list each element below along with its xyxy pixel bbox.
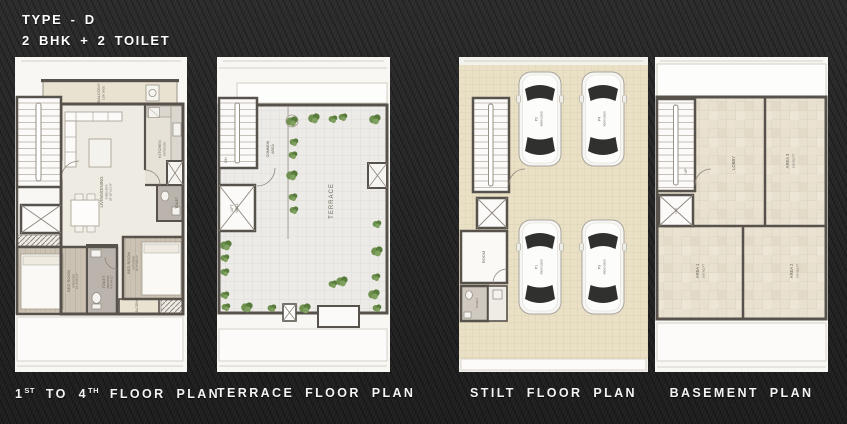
label-area2: AREA 2 (789, 263, 794, 278)
label-car-p2-size: 4500X2500 (540, 111, 544, 127)
floor-plan-1to4-drawing: BALCONY 1200 WIDE LIVING/DINING 6300X355… (15, 57, 187, 372)
caption-sup: TH (88, 386, 99, 395)
label-bedroom-b-dim-ft: 10'-5"X10'-0" (135, 255, 139, 271)
label-area3: AREA 3 (785, 153, 790, 168)
label-terrace: TERRACE (329, 183, 335, 219)
wc (466, 291, 473, 299)
label-stairs-up: UP (684, 168, 688, 174)
caption-stilt-plan: STILT FLOOR PLAN (459, 386, 648, 400)
label-car-p1: P1 (535, 265, 539, 269)
caption-part: 1 (15, 387, 24, 401)
plan3-lift (477, 198, 507, 228)
label-car-p4: P4 (598, 117, 602, 121)
panel-terrace-plan: DN LIFT WELL COMMON AREA TERRACE (217, 57, 390, 372)
label-common-area-1: COMMON (266, 140, 270, 157)
caption-part: FLOOR PLAN (99, 387, 220, 401)
label-car-p3-size: 4500X2500 (603, 259, 607, 275)
label-living-dining: LIVING/DINING (99, 176, 104, 208)
panel-floor-plan-1to4: BALCONY 1200 WIDE LIVING/DINING 6300X355… (15, 57, 187, 372)
caption-part: TO 4 (35, 387, 88, 401)
stair-handrail (489, 104, 494, 186)
plan2-duct-shaft (368, 163, 387, 188)
label-balcony-top-dim: 1200 WIDE (102, 86, 106, 100)
wash-basin (91, 250, 101, 257)
plan1-duct-shaft (167, 161, 183, 185)
stilt-plan-drawing: P2 4500X2500 P4 4500X2500 P1 4500X2500 P… (459, 57, 648, 372)
label-toilet-a: TOILET (102, 275, 106, 288)
caption-floor-plan-1to4: 1ST TO 4TH FLOOR PLAN (15, 386, 187, 401)
dining-table (71, 200, 99, 226)
label-car-p4-size: 4500X2500 (603, 111, 607, 127)
label-lift-well-1: LIFT (230, 205, 234, 212)
kitchen-sink (173, 123, 181, 136)
terrace-plan-drawing: DN LIFT WELL COMMON AREA TERRACE (217, 57, 390, 372)
stair-handrail (235, 103, 240, 163)
label-toilet-b: TOILET (175, 197, 179, 209)
basement-plan-drawing: UP LIFT LOBBY AREA 3 160 SQ.FT AREA 1 16… (655, 57, 828, 372)
label-balcony-top: BALCONY (96, 83, 101, 102)
label-bedroom-b: BED ROOM (126, 252, 131, 274)
label-toilet: TOILET (475, 298, 479, 309)
coffee-table (89, 139, 111, 167)
label-toilet-a-dim-mm: 2600X1500 (106, 275, 110, 289)
panel-basement-plan: UP LIFT LOBBY AREA 3 160 SQ.FT AREA 1 16… (655, 57, 828, 372)
label-bedroom-a: BED ROOM (66, 270, 71, 292)
label-lift: LIFT (674, 207, 678, 213)
caption-basement-plan: BASEMENT PLAN (655, 386, 828, 400)
label-lobby: LOBBY (731, 156, 736, 170)
panel-stilt-plan: P2 4500X2500 P4 4500X2500 P1 4500X2500 P… (459, 57, 648, 372)
label-car-p1-size: 4500X2500 (540, 259, 544, 275)
stair-handrail (36, 103, 41, 181)
plan1-bottom-strip (17, 317, 183, 366)
type-title: TYPE - D (22, 9, 170, 30)
header: TYPE - D 2 BHK + 2 TOILET (22, 9, 170, 52)
label-car-p2: P2 (535, 117, 539, 121)
label-car-p3: P3 (598, 265, 602, 269)
plan1-lift (21, 205, 61, 233)
label-kitchen-dim: 2475X2150 (162, 141, 166, 156)
plan3-bottom-strip (461, 359, 646, 370)
label-balcony-b: BALCONY (135, 299, 139, 315)
label-stairs-dn: DN (224, 157, 228, 163)
plan3-toilet (461, 286, 507, 321)
label-room: ROOM (481, 251, 486, 263)
label-kitchen: KITCHEN (157, 140, 162, 158)
wc (92, 293, 101, 304)
label-toilet-a-dim-ft: 8'-6"X4'-11" (109, 275, 113, 288)
label-area3-size: 160 SQ.FT (792, 153, 796, 168)
plan1-stairs (17, 97, 61, 187)
stair-handrail (674, 105, 679, 185)
label-bedroom-a-dim-ft: 12'-4"X11'-0" (75, 273, 79, 289)
caption-sup: ST (24, 386, 35, 395)
label-lift-well-2: WELL (235, 203, 239, 212)
plan4-bottom-strip (657, 323, 826, 367)
caption-terrace-plan: TERRACE FLOOR PLAN (217, 386, 390, 400)
label-area1: AREA 1 (695, 263, 700, 278)
wash-basin (464, 312, 471, 318)
brochure-canvas: TYPE - D 2 BHK + 2 TOILET (0, 0, 847, 424)
label-area1-size: 160 SQ.FT (702, 263, 706, 278)
label-common-area-2: AREA (271, 144, 275, 154)
type-subtitle: 2 BHK + 2 TOILET (22, 30, 170, 51)
sofa (65, 112, 122, 121)
label-living-dim-ft: 20'-10"X11'-8" (109, 183, 113, 201)
label-area2-size: 160 SQ.FT (796, 263, 800, 278)
wc (161, 191, 169, 201)
